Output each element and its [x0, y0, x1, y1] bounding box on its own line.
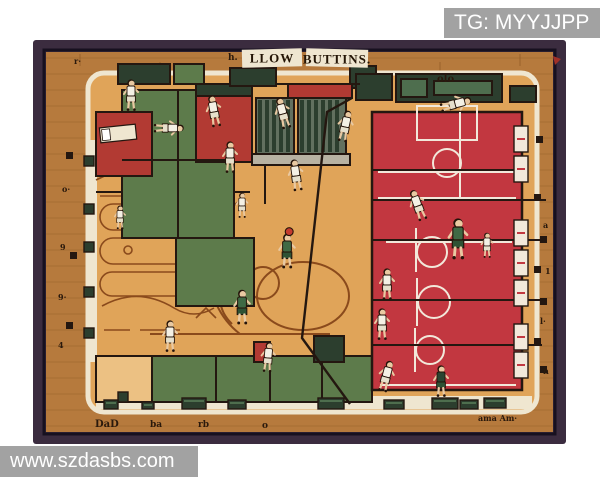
gibberish-label: a — [543, 220, 548, 230]
gibberish-label: 9· — [58, 292, 67, 302]
margin-tick — [66, 322, 73, 329]
bench — [384, 400, 404, 409]
bench — [460, 400, 478, 409]
gibberish-label: l· — [540, 316, 546, 326]
watermark-bottom: www.szdasbs.com — [0, 446, 198, 477]
bench — [318, 398, 344, 409]
door-square — [118, 392, 128, 402]
room — [314, 336, 344, 362]
gibberish-label: DaD — [95, 419, 119, 430]
gibberish-label: olo — [437, 74, 454, 85]
bench — [182, 398, 206, 409]
watermark-top: TG: MYYJJPP — [444, 8, 600, 38]
bench — [432, 398, 458, 409]
bed-in-red-room — [99, 124, 136, 143]
room — [118, 64, 170, 84]
gibberish-label: o — [262, 421, 268, 431]
room — [174, 64, 204, 84]
gym-floorplan-illustration: oloDaDbarboama Am·a1l·no·99·4r·h. LLOW B… — [0, 0, 600, 480]
margin-tick — [540, 298, 547, 305]
gibberish-label: 1 — [545, 266, 551, 276]
title-word-1: LLOW — [250, 51, 294, 66]
margin-tick — [534, 338, 541, 345]
bench — [104, 400, 118, 409]
basketball — [285, 228, 293, 236]
page: oloDaDbarboama Am·a1l·no·99·4r·h. LLOW B… — [0, 0, 600, 480]
door-square — [84, 242, 94, 252]
room — [230, 68, 276, 86]
title-word-2: BUTTINS. — [303, 52, 371, 67]
title-plaque: LLOW BUTTINS. — [242, 48, 371, 68]
margin-tick — [66, 152, 73, 159]
room — [356, 74, 392, 100]
door-square — [84, 156, 94, 166]
gibberish-label: 4 — [58, 340, 64, 350]
gibberish-label: rb — [198, 420, 209, 430]
bench — [228, 400, 246, 409]
room — [196, 96, 252, 162]
margin-tick — [536, 136, 543, 143]
door-square — [84, 328, 94, 338]
room — [252, 154, 350, 165]
margin-tick — [534, 266, 541, 273]
gibberish-label: r· — [74, 56, 81, 66]
room — [401, 79, 427, 97]
room — [96, 112, 152, 176]
gibberish-label: n — [543, 366, 549, 376]
room — [510, 86, 536, 102]
room — [288, 84, 352, 98]
bench — [484, 398, 506, 408]
door-square — [84, 287, 94, 297]
margin-tick — [70, 252, 77, 259]
gibberish-label: h. — [228, 53, 238, 63]
margin-tick — [540, 236, 547, 243]
gibberish-label: o· — [62, 184, 70, 194]
sideline-marker-layer — [514, 126, 528, 378]
gibberish-label: ama Am· — [478, 413, 517, 423]
margin-tick — [534, 194, 541, 201]
gibberish-label: 9 — [60, 242, 66, 252]
gibberish-label: ba — [150, 420, 162, 430]
door-square — [84, 204, 94, 214]
room — [152, 356, 324, 402]
